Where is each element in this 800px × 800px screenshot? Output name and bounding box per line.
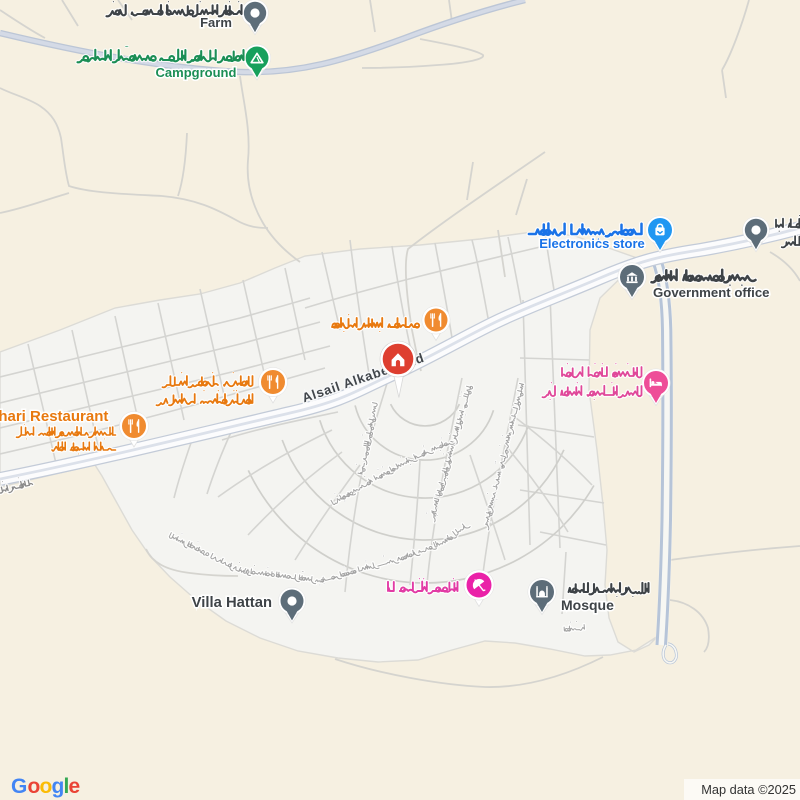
svg-text:o: o	[28, 775, 40, 798]
svg-text:Government office: Government office	[653, 285, 770, 300]
svg-text:Map data ©2025: Map data ©2025	[701, 782, 796, 797]
svg-text:G: G	[11, 775, 27, 798]
svg-text:Electronics store: Electronics store	[539, 236, 645, 251]
svg-text:Campground: Campground	[156, 65, 237, 80]
svg-text:Farm: Farm	[200, 15, 232, 30]
svg-text:Villa Hattan: Villa Hattan	[192, 595, 272, 611]
svg-text:g: g	[52, 775, 64, 798]
svg-text:Mosque: Mosque	[561, 597, 614, 613]
svg-text:o: o	[40, 775, 52, 798]
svg-text:Bukhari Restaurant: Bukhari Restaurant	[0, 408, 108, 425]
svg-text:e: e	[69, 775, 80, 798]
